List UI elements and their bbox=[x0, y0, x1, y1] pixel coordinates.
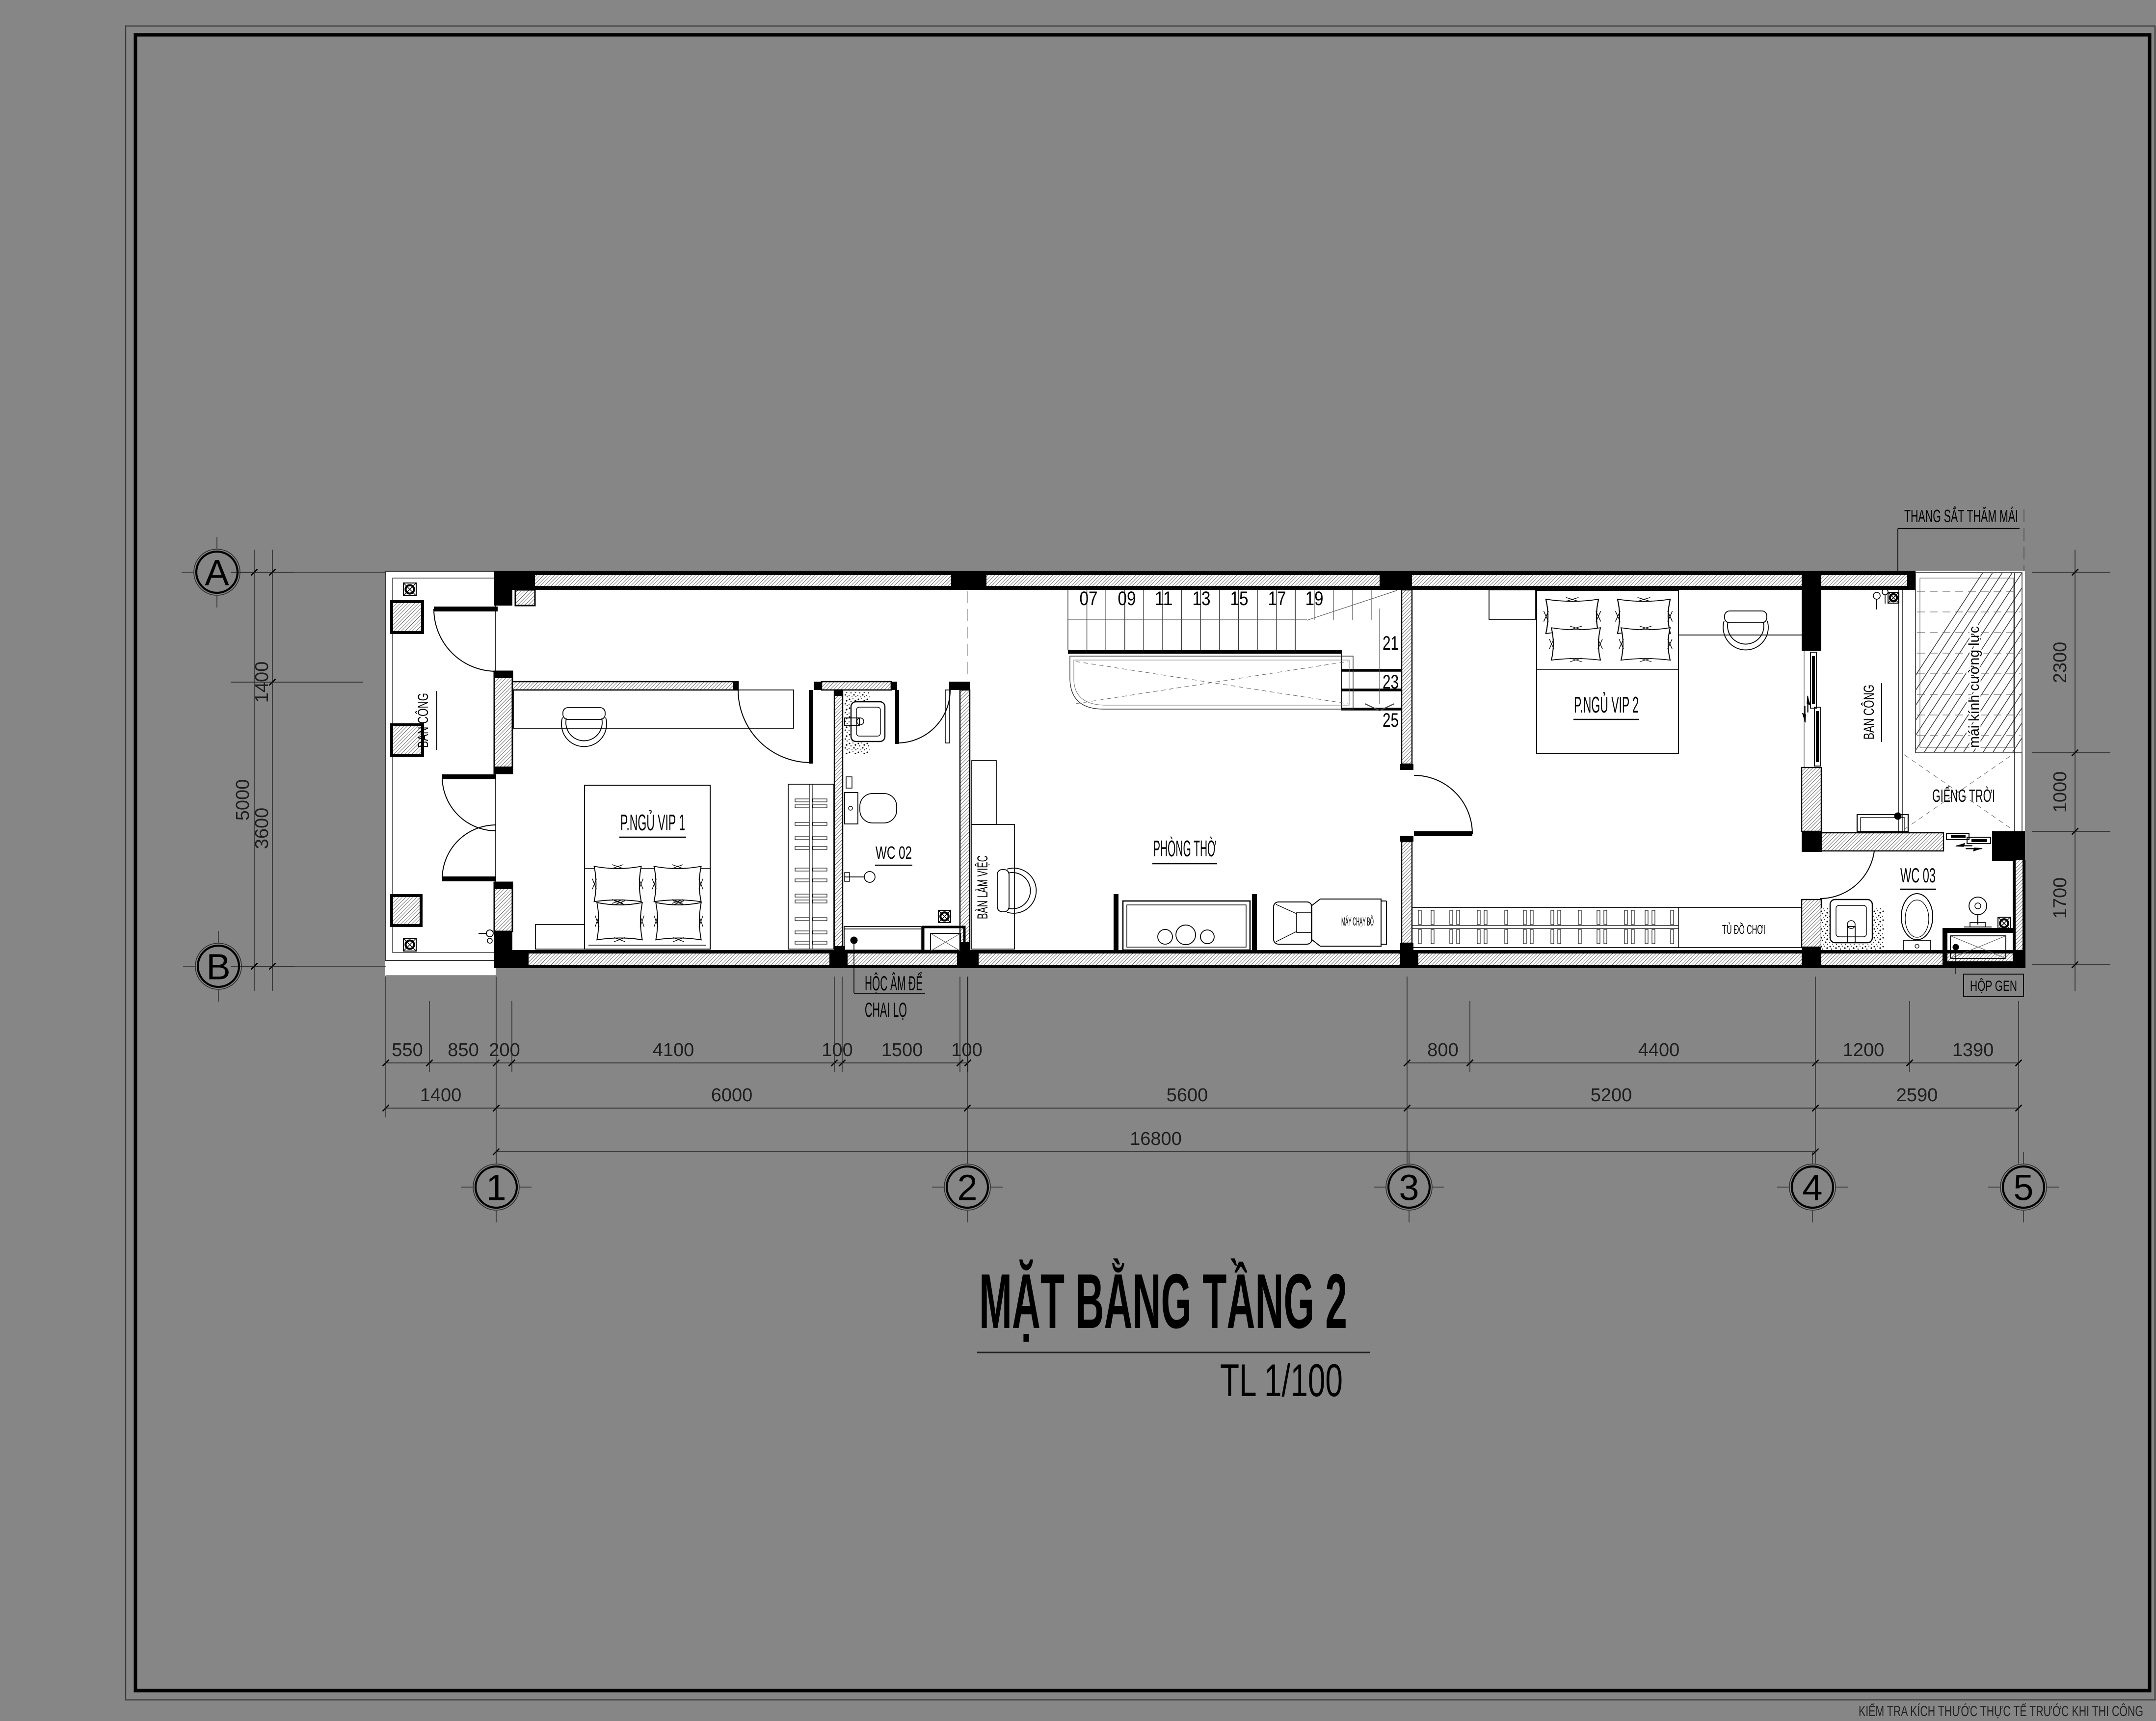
svg-text:25: 25 bbox=[1383, 710, 1399, 731]
svg-text:GIẾNG TRỜI: GIẾNG TRỜI bbox=[1932, 786, 1995, 806]
svg-text:09: 09 bbox=[1118, 588, 1136, 609]
svg-text:19: 19 bbox=[1305, 588, 1324, 609]
svg-text:6000: 6000 bbox=[711, 1085, 753, 1106]
svg-text:550: 550 bbox=[392, 1040, 423, 1060]
svg-text:WC 03: WC 03 bbox=[1900, 864, 1936, 887]
svg-text:5600: 5600 bbox=[1167, 1085, 1208, 1106]
svg-text:16800: 16800 bbox=[1130, 1129, 1182, 1149]
svg-text:TL 1/100: TL 1/100 bbox=[1220, 1354, 1343, 1406]
svg-text:13: 13 bbox=[1193, 588, 1211, 609]
svg-text:4400: 4400 bbox=[1638, 1040, 1680, 1060]
svg-text:15: 15 bbox=[1230, 588, 1249, 609]
svg-text:200: 200 bbox=[489, 1040, 520, 1060]
svg-text:HỘP GEN: HỘP GEN bbox=[1970, 978, 2017, 994]
svg-text:850: 850 bbox=[448, 1040, 479, 1060]
svg-text:100: 100 bbox=[951, 1040, 982, 1060]
svg-text:11: 11 bbox=[1155, 588, 1173, 609]
svg-text:21: 21 bbox=[1383, 633, 1399, 654]
svg-text:CHAI LỌ: CHAI LỌ bbox=[865, 998, 907, 1021]
svg-text:17: 17 bbox=[1268, 588, 1286, 609]
svg-text:1700: 1700 bbox=[2050, 877, 2071, 919]
svg-text:3600: 3600 bbox=[252, 808, 272, 849]
svg-text:A: A bbox=[205, 553, 229, 593]
svg-text:PHÒNG THỜ: PHÒNG THỜ bbox=[1153, 836, 1216, 861]
svg-text:4100: 4100 bbox=[653, 1040, 694, 1060]
svg-text:1390: 1390 bbox=[1952, 1040, 1994, 1060]
svg-text:BAN CÔNG: BAN CÔNG bbox=[1861, 685, 1877, 740]
svg-text:THANG SẮT THĂM MÁI: THANG SẮT THĂM MÁI bbox=[1904, 505, 2018, 526]
svg-text:23: 23 bbox=[1383, 671, 1399, 693]
svg-text:2590: 2590 bbox=[1896, 1085, 1938, 1106]
svg-text:KIỂM TRA KÍCH THƯỚC THỰC TẾ TR: KIỂM TRA KÍCH THƯỚC THỰC TẾ TRƯỚC KHI TH… bbox=[1859, 1703, 2143, 1720]
svg-text:5200: 5200 bbox=[1591, 1085, 1632, 1106]
svg-text:800: 800 bbox=[1427, 1040, 1458, 1060]
svg-text:5000: 5000 bbox=[233, 779, 253, 821]
svg-text:BAN CÔNG: BAN CÔNG bbox=[415, 693, 431, 748]
svg-text:B: B bbox=[206, 947, 230, 987]
svg-text:1400: 1400 bbox=[252, 662, 272, 703]
svg-text:HỘC ÂM ĐỂ: HỘC ÂM ĐỂ bbox=[865, 971, 923, 995]
svg-text:MÁY CHẠY BỘ: MÁY CHẠY BỘ bbox=[1341, 915, 1374, 928]
svg-text:1500: 1500 bbox=[881, 1040, 923, 1060]
svg-text:P.NGỦ VIP 2: P.NGỦ VIP 2 bbox=[1574, 692, 1639, 717]
svg-text:TỦ ĐỒ CHƠI: TỦ ĐỒ CHƠI bbox=[1722, 922, 1765, 937]
svg-text:1000: 1000 bbox=[2050, 771, 2071, 813]
svg-text:P.NGỦ VIP 1: P.NGỦ VIP 1 bbox=[620, 810, 685, 835]
svg-text:BÀN LÀM VIỆC: BÀN LÀM VIỆC bbox=[975, 855, 991, 919]
svg-text:1200: 1200 bbox=[1843, 1040, 1885, 1060]
svg-text:1400: 1400 bbox=[420, 1085, 462, 1106]
svg-text:100: 100 bbox=[822, 1040, 852, 1060]
svg-text:mái kính cường lực: mái kính cường lực bbox=[1966, 626, 1982, 748]
svg-text:2300: 2300 bbox=[2050, 642, 2071, 684]
svg-text:4: 4 bbox=[1802, 1167, 1822, 1208]
svg-text:WC 02: WC 02 bbox=[876, 843, 912, 863]
svg-text:5: 5 bbox=[2013, 1167, 2033, 1208]
svg-text:MẶT BẰNG TẦNG 2: MẶT BẰNG TẦNG 2 bbox=[979, 1258, 1347, 1345]
svg-text:07: 07 bbox=[1080, 588, 1098, 609]
svg-text:1: 1 bbox=[486, 1167, 506, 1208]
svg-text:3: 3 bbox=[1399, 1167, 1419, 1208]
svg-text:2: 2 bbox=[957, 1167, 977, 1208]
